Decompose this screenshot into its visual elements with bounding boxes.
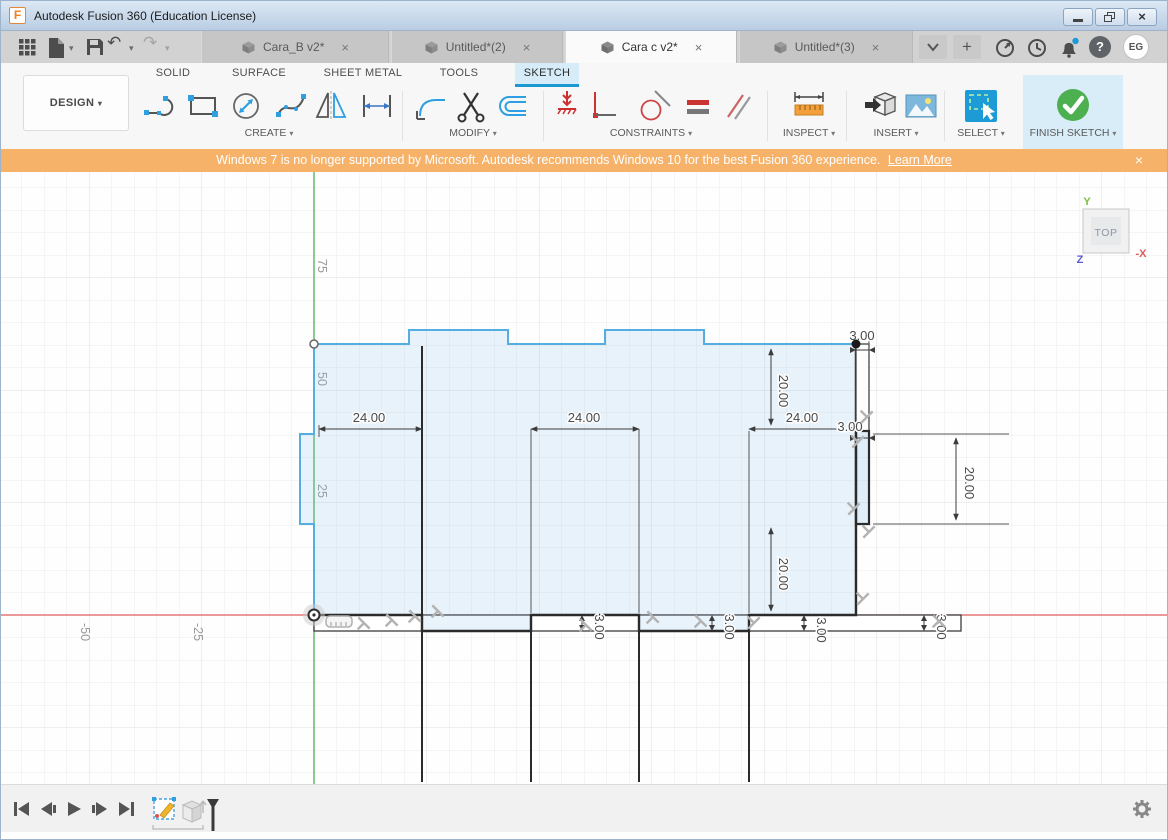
doc-tab-label: Untitled*(3) [795, 40, 855, 54]
svg-text:75: 75 [315, 259, 329, 273]
sketch-dimension-tool-icon[interactable] [359, 88, 395, 124]
doc-tab-cara-c-active[interactable]: Cara c v2* × [565, 31, 737, 63]
group-label-constraints[interactable]: CONSTRAINTS ▾ [610, 127, 692, 139]
document-tab-bar: ▾ ↶ ▾ ↷ ▾ Cara_B v2* × Untitled*(2) × Ca… [1, 31, 1167, 63]
constraint-perpendicular-icon[interactable] [585, 88, 621, 124]
constraint-equal-icon[interactable] [680, 88, 716, 124]
caret-icon: ▾ [1001, 129, 1005, 138]
tab-close-icon[interactable]: × [523, 40, 531, 55]
viewcube-y-axis-label: Y [1083, 196, 1091, 208]
close-icon: × [1138, 9, 1146, 24]
group-label-insert[interactable]: INSERT ▾ [873, 127, 918, 139]
tab-sketch-active[interactable]: SKETCH [524, 67, 570, 79]
dim-thickness-3: 3.00 [592, 614, 607, 639]
document-cube-icon [773, 40, 788, 55]
insert-derive-icon[interactable] [863, 88, 899, 124]
ruler-glyph [326, 616, 352, 627]
timeline-step-forward-icon[interactable] [91, 800, 109, 818]
viewcube-z-axis-label: Z [1077, 254, 1084, 266]
tab-close-icon[interactable]: × [872, 40, 880, 55]
circle-tool-icon[interactable] [228, 88, 264, 124]
tab-surface[interactable]: SURFACE [232, 67, 286, 79]
redo-caret-icon[interactable]: ▾ [165, 43, 170, 54]
undo-icon[interactable]: ↶ [107, 33, 121, 53]
fusion-app-icon: F [9, 7, 26, 24]
timeline-marker[interactable] [207, 799, 219, 831]
undo-caret-icon[interactable]: ▾ [129, 43, 134, 54]
restore-icon [1104, 12, 1116, 22]
tab-tools[interactable]: TOOLS [440, 67, 479, 79]
sketch-point[interactable] [310, 340, 318, 348]
fusion360-window: F Autodesk Fusion 360 (Education License… [0, 0, 1168, 840]
doc-tab-label: Untitled*(2) [446, 40, 506, 54]
origin-point[interactable] [303, 604, 325, 626]
document-cube-icon [424, 40, 439, 55]
caret-icon: ▾ [688, 129, 692, 138]
select-tool-icon[interactable] [963, 88, 999, 124]
dim-height-2: 20.00 [776, 558, 791, 591]
tab-close-icon[interactable]: × [341, 40, 349, 55]
group-separator [846, 91, 847, 141]
timeline-group-bracket [153, 825, 203, 829]
mirror-tool-icon[interactable] [313, 88, 349, 124]
group-label-create[interactable]: CREATE ▾ [245, 127, 294, 139]
caret-icon: ▾ [493, 129, 497, 138]
history-clock-icon[interactable] [1025, 35, 1049, 59]
minimize-button[interactable] [1063, 8, 1093, 26]
window-title: Autodesk Fusion 360 (Education License) [34, 1, 256, 31]
group-separator [767, 91, 768, 141]
workspace-caret-icon: ▾ [98, 99, 102, 108]
timeline-go-to-start-icon[interactable] [13, 800, 31, 818]
bottom-strip-profile[interactable] [314, 615, 961, 631]
caret-icon: ▾ [915, 129, 919, 138]
new-tab-button[interactable]: + [953, 35, 981, 59]
group-separator [543, 91, 544, 141]
help-icon[interactable]: ? [1089, 36, 1111, 58]
save-icon[interactable] [85, 37, 105, 57]
banner-message: Windows 7 is no longer supported by Micr… [216, 153, 880, 167]
dim-thickness-2: 3.00 [837, 419, 862, 434]
group-separator [402, 91, 403, 141]
group-label-inspect[interactable]: INSPECT ▾ [783, 127, 835, 139]
notification-badge [1072, 38, 1078, 44]
constraint-coincident-icon[interactable] [549, 88, 585, 124]
timeline-features [151, 795, 221, 831]
fillet-tool-icon[interactable] [414, 88, 450, 124]
sketch-point-fixed[interactable] [852, 340, 861, 349]
group-label-modify[interactable]: MODIFY ▾ [449, 127, 497, 139]
dim-height-3: 20.00 [962, 467, 977, 500]
new-design-caret-icon[interactable]: ▾ [69, 43, 74, 54]
tab-sheet-metal[interactable]: SHEET METAL [324, 67, 403, 79]
dim-width-3: 24.00 [786, 410, 819, 425]
timeline-sketch-feature[interactable] [152, 797, 176, 819]
rectangle-tool-icon[interactable] [185, 88, 221, 124]
viewcube-x-axis-label: -X [1136, 248, 1148, 260]
group-separator [944, 91, 945, 141]
minimize-icon [1073, 19, 1083, 22]
caret-icon: ▾ [1112, 129, 1116, 138]
group-label-select[interactable]: SELECT ▾ [957, 127, 1005, 139]
app-grid-icon[interactable] [17, 37, 37, 57]
dim-width-2: 24.00 [568, 410, 601, 425]
plus-icon: + [962, 37, 972, 56]
restore-button[interactable] [1095, 8, 1125, 26]
tab-close-icon[interactable]: × [695, 40, 703, 55]
measure-tool-icon[interactable] [791, 88, 827, 124]
group-label-finish-sketch[interactable]: FINISH SKETCH ▾ [1030, 127, 1117, 139]
constraint-parallel-icon[interactable] [720, 88, 756, 124]
doc-tab-untitled-3[interactable]: Untitled*(3) × [739, 31, 913, 63]
dim-thickness-5: 3.00 [814, 617, 829, 642]
timeline-bar [1, 784, 1167, 832]
caret-icon: ▾ [289, 129, 293, 138]
learn-more-link[interactable]: Learn More [888, 153, 952, 167]
ribbon-toolbar: DESIGN ▾ SOLID SURFACE SHEET METAL TOOLS… [1, 63, 1167, 149]
dim-thickness-4: 3.00 [722, 614, 737, 639]
dim-height-1: 20.00 [776, 375, 791, 408]
banner-close-icon[interactable]: × [1135, 149, 1143, 172]
redo-icon[interactable]: ↷ [143, 33, 157, 53]
settings-gear-icon[interactable] [1131, 798, 1153, 820]
timeline-go-to-end-icon[interactable] [117, 800, 135, 818]
sketch-canvas-svg[interactable]: 75 50 25 -50 -25 [1, 172, 1168, 784]
timeline-extrude-feature[interactable] [183, 801, 206, 822]
doc-tab-label: Cara_B v2* [263, 40, 324, 54]
chevron-down-icon [919, 35, 947, 59]
doc-tab-untitled-2[interactable]: Untitled*(2) × [391, 31, 563, 63]
doc-tab-cara-b[interactable]: Cara_B v2* × [201, 31, 389, 63]
right-tab-lower[interactable] [856, 431, 869, 524]
trim-scissors-icon[interactable] [453, 88, 489, 124]
spline-tool-icon[interactable] [273, 88, 309, 124]
finish-sketch-check-icon[interactable] [1053, 85, 1093, 125]
document-cube-icon [600, 40, 615, 55]
tab-list-button[interactable] [919, 35, 947, 59]
svg-text:-50: -50 [78, 623, 92, 641]
tab-solid[interactable]: SOLID [156, 67, 191, 79]
constraint-tangent-icon[interactable] [636, 88, 672, 124]
dim-width-1: 24.00 [353, 410, 386, 425]
notifications-bell-icon[interactable] [1057, 35, 1081, 59]
timeline-step-back-icon[interactable] [39, 800, 57, 818]
offset-tool-icon[interactable] [495, 88, 531, 124]
account-avatar[interactable]: EG [1123, 34, 1149, 60]
insert-canvas-image-icon[interactable] [903, 88, 939, 124]
timeline-play-icon[interactable] [65, 800, 83, 818]
job-status-icon[interactable] [993, 35, 1017, 59]
doc-tab-label: Cara c v2* [622, 40, 678, 54]
workspace-selector[interactable]: DESIGN ▾ [23, 75, 129, 131]
line-tool-icon[interactable] [142, 88, 178, 124]
windows7-warning-banner: Windows 7 is no longer supported by Micr… [1, 149, 1167, 172]
title-bar: F Autodesk Fusion 360 (Education License… [1, 1, 1167, 31]
new-design-icon[interactable] [45, 37, 67, 59]
document-cube-icon [241, 40, 256, 55]
model-canvas[interactable]: 75 50 25 -50 -25 [1, 172, 1168, 784]
close-button[interactable]: × [1127, 8, 1157, 26]
viewcube-face-label: TOP [1095, 227, 1118, 239]
caret-icon: ▾ [831, 129, 835, 138]
svg-text:-25: -25 [191, 623, 205, 641]
